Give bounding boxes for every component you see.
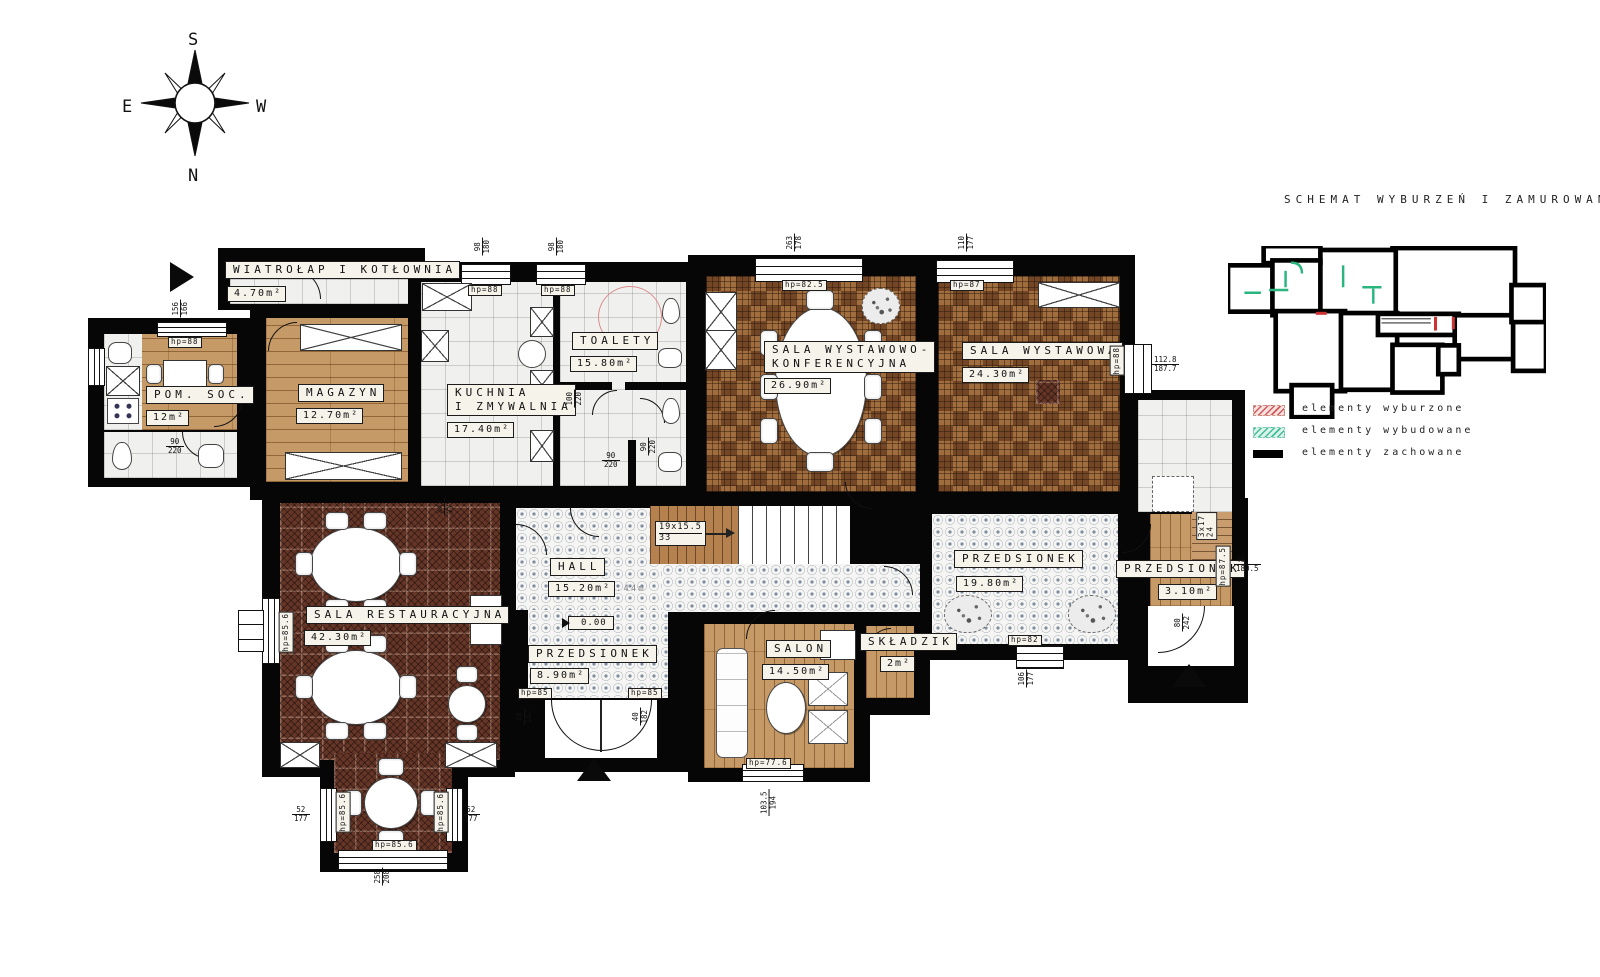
bathroom-wc [112, 442, 132, 470]
rest-t2-chair-w [295, 675, 313, 699]
schematic-mini-plan [1228, 246, 1546, 419]
toalety-sink-2 [658, 452, 682, 472]
area-pom-soc: 12m² [146, 410, 189, 426]
dim-side-door: 80242 [1174, 614, 1192, 632]
dim-toalety-top: 98180 [548, 238, 566, 256]
label-swk-line2: KONFERENCYJNA [772, 357, 931, 371]
dim-wc3: 90220 [640, 438, 658, 456]
dim-salon-bottom: 103.5194 [761, 789, 779, 816]
stair-continuation-dashed [1152, 476, 1194, 512]
label-sala-wyst-konf: SALA WYSTAWOWO- KONFERENCYJNA [764, 341, 935, 373]
dim-wc2: 90220 [602, 452, 620, 470]
dim-kuchnia-top: 98180 [474, 238, 492, 256]
rest-t1-chair-e [399, 552, 417, 576]
salawk-chair-n [806, 290, 834, 310]
label-sala-restauracyjna: SALA RESTAURACYJNA [306, 606, 509, 624]
dim-entry-left: 40182 [516, 708, 534, 726]
label-skladzik: SKŁADZIK [860, 633, 957, 651]
toalety-sink-1 [658, 348, 682, 368]
rest-table-1 [310, 527, 402, 602]
rest-t2-chair-s1 [325, 722, 349, 740]
window-salaw-right [1124, 344, 1152, 394]
hall-note: .44m [616, 584, 646, 594]
dim-pomsoc-top: 156166 [172, 300, 190, 318]
pomsoc-chair-1 [146, 364, 162, 384]
label-przedsionek-main: PRZEDSIONEK [528, 645, 657, 663]
magazyn-shelf-top [300, 324, 402, 351]
salawk-chair-s [806, 452, 834, 472]
dim-salaw-right: 112.8187.7 [1152, 356, 1179, 374]
bathroom-sink [198, 444, 224, 468]
label-hall: HALL [550, 558, 605, 576]
salawk-chair-e3 [864, 418, 882, 444]
stairs-upper-treads [738, 506, 850, 564]
floor-plan-sheet: S N E W [0, 0, 1600, 977]
area-salon: 14.50m² [762, 664, 829, 680]
area-magazyn: 12.70m² [296, 408, 363, 424]
hp-entry-left: hp=85 [518, 688, 552, 699]
salawk-window-x2 [705, 330, 737, 370]
door-entry-centerline [600, 700, 602, 752]
area-kuchnia: 17.40m² [447, 422, 514, 438]
label-wiatrolap: WIATROŁAP I KOTŁOWNIA [225, 261, 460, 279]
partition-toalety-2 [625, 382, 686, 390]
hp-rest-left: hp=85.6 [279, 612, 294, 653]
hp-side: hp=87.5 [1216, 546, 1231, 587]
salaw-shelf [1038, 282, 1120, 308]
area-przedsionek-east: 19.80m² [956, 576, 1023, 592]
hp-salon: hp=77.6 [746, 758, 791, 769]
dim-bay-bottom: 258208 [374, 868, 392, 886]
level-marker-flag [562, 618, 570, 628]
legend-swatch-built [1253, 427, 1285, 438]
legend-label-retained: elementy zachowane [1302, 447, 1464, 458]
salon-table [766, 682, 806, 734]
salawk-chair-e2 [864, 374, 882, 400]
window-salawk-top [755, 258, 863, 282]
kuchnia-round-sink [518, 340, 546, 368]
pomsoc-chair-2 [208, 364, 224, 384]
salon-armchair-2 [808, 710, 848, 744]
rest-rt-chair-n [456, 666, 478, 683]
dim-bathroom-door: 90220 [166, 438, 184, 456]
compass-s: S [188, 30, 198, 50]
entrance-marker-southeast [1172, 664, 1206, 687]
hp-salaw: hp=87 [950, 280, 984, 291]
stairs-side-label: 3x17 24 [1196, 512, 1217, 540]
stairs-main-label: 19x15.5 33 [655, 521, 706, 546]
steps-corridor-east [1016, 645, 1064, 669]
rest-t1-chair-n2 [363, 512, 387, 530]
rest-round-table [448, 685, 486, 723]
area-sala-wyst-konf: 26.90m² [764, 378, 831, 394]
hp-kuchnia: hp=88 [468, 285, 502, 296]
dim-entry-right: 40182 [632, 708, 650, 726]
rest-rt-chair-s [456, 724, 478, 741]
area-sala-restauracyjna: 42.30m² [304, 630, 371, 646]
area-przedsionek-main: 8.90m² [530, 668, 589, 684]
salon-sofa [716, 648, 748, 758]
window-bay-bottom [338, 850, 448, 870]
dim-bay-left: 52177 [292, 806, 310, 824]
dim-side-right: 46180.5 [1234, 556, 1261, 574]
stair-arrow-head [726, 528, 735, 538]
corridor-plant-1 [944, 595, 992, 633]
hp-corridor: hp=82 [1008, 635, 1042, 646]
dim-corridor-bottom: 106177 [1018, 670, 1036, 688]
label-kuchnia-line2: I ZMYWALNIA [455, 400, 572, 414]
salawk-window-x1 [705, 292, 737, 332]
label-kuchnia-line1: KUCHNIA [455, 386, 572, 400]
salaw-dark-patch [1036, 380, 1060, 404]
hp-bay-bottom: hp=85.6 [372, 840, 417, 851]
salawk-chair-w3 [760, 418, 778, 444]
rest-t1-chair-n1 [325, 512, 349, 530]
area-wiatrolap: 4.70m² [227, 286, 286, 302]
window-rest-left [262, 598, 280, 664]
window-rest-porch [238, 610, 264, 652]
pomsoc-counter-x [106, 366, 140, 396]
dim-salawk-top: 263178 [786, 234, 804, 252]
legend-label-built: elementy wybudowane [1302, 425, 1473, 436]
hp-salawk: hp=82.5 [782, 280, 827, 291]
window-kuchnia-top [461, 264, 511, 285]
label-kuchnia: KUCHNIA I ZMYWALNIA [447, 384, 576, 416]
window-west-wall [88, 348, 105, 386]
stairs-main-line2: 33 [659, 534, 702, 544]
kuchnia-island-3 [530, 430, 554, 462]
kuchnia-island-1 [530, 307, 554, 337]
floor-sala-wystawowa [938, 276, 1120, 492]
dim-wc1: 100220 [566, 390, 584, 408]
compass-rose [125, 28, 265, 178]
window-bay-left [320, 788, 337, 842]
area-skladzik: 2m² [880, 656, 915, 672]
window-pomsoc-top [157, 322, 227, 337]
bay-round-table [364, 777, 418, 829]
hp-pomsoc: hp=88 [168, 337, 202, 348]
hp-salaw-right: hp=88 [1110, 346, 1125, 376]
legend-swatch-retained [1253, 450, 1283, 458]
label-salon: SALON [766, 640, 831, 658]
stairs-side-line2: 24 [1207, 515, 1216, 537]
pomsoc-sink [108, 342, 132, 364]
rest-table-2 [310, 650, 402, 725]
legend-label-demolished: elementy wyburzone [1302, 403, 1464, 414]
rest-t1-chair-w [295, 552, 313, 576]
schematic-title: SCHEMAT WYBURZEŃ I ZAMUROWAŃ [1284, 193, 1600, 206]
dim-rest-door: xxxyyy [436, 498, 454, 516]
compass-n: N [188, 166, 198, 186]
hp-entry-right: hp=85 [628, 688, 662, 699]
label-sala-wystawowa: SALA WYSTAWOWA [962, 342, 1123, 360]
area-przedsionek-side: 3.10m² [1158, 584, 1217, 600]
area-sala-wystawowa: 24.30m² [962, 367, 1029, 383]
dim-salaw-top: 110177 [958, 234, 976, 252]
level-marker: 0.00 [568, 616, 614, 630]
bay-corner-x-left [280, 742, 320, 768]
hp-toalety: hp=88 [541, 285, 575, 296]
entrance-marker-west [170, 262, 194, 292]
compass-w: W [256, 97, 266, 117]
label-toalety: TOALETY [572, 332, 658, 350]
legend-swatch-demolished [1253, 405, 1285, 416]
bay-corner-x-right [445, 742, 497, 768]
window-toalety-top [536, 264, 586, 285]
pomsoc-stove [107, 398, 139, 424]
toalety-wc-1 [662, 298, 680, 324]
label-swk-line1: SALA WYSTAWOWO- [772, 343, 931, 357]
magazyn-shelf-bottom [285, 452, 402, 480]
rest-t2-chair-e [399, 675, 417, 699]
label-pom-soc: POM. SOC. [146, 386, 254, 404]
kuchnia-counter-2 [421, 330, 449, 362]
bay-chair-n [378, 758, 404, 776]
partition-toalety-3 [628, 440, 636, 486]
rest-t2-chair-s2 [363, 722, 387, 740]
kuchnia-counter-1 [422, 283, 472, 311]
corridor-plant-2 [1068, 595, 1116, 633]
area-hall: 15.20m² [548, 581, 615, 597]
compass-e: E [122, 97, 132, 117]
hp-bay-right: hp=85.6 [434, 792, 449, 833]
area-toalety: 15.80m² [570, 356, 637, 372]
entrance-marker-south [577, 758, 611, 781]
floor-corridor-mid [662, 564, 920, 612]
label-magazyn: MAGAZYN [298, 384, 384, 402]
dim-bay-right: 52177 [462, 806, 480, 824]
hp-bay-left: hp=85.6 [336, 792, 351, 833]
toalety-wc-2 [662, 398, 680, 424]
salawk-plant [862, 288, 900, 324]
label-przedsionek-east: PRZEDSIONEK [954, 550, 1083, 568]
